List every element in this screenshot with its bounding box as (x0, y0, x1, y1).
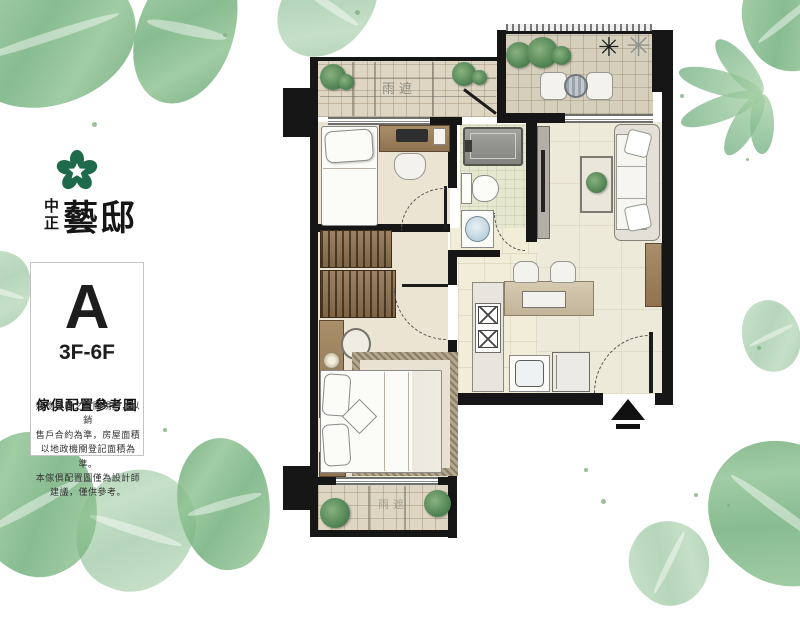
dining-chair (513, 261, 539, 283)
wall (662, 60, 673, 405)
scatter-dot (757, 346, 761, 350)
caption-disclaimer: 建物樓層之空間規劃，以銷 售戶合約為準，房屋面積 以地政機關登記面積為準。 本傢… (32, 399, 144, 500)
scatter-dot (694, 493, 698, 497)
bed-blanket-shade (412, 371, 441, 472)
wall (448, 393, 603, 405)
balcony-plant (320, 498, 350, 528)
wall (655, 393, 673, 405)
single-bed-blanket-fold (323, 168, 376, 169)
terrace-chair (586, 72, 613, 100)
dining-chair (550, 261, 576, 283)
wardrobe-lower (320, 270, 396, 318)
entry-console (645, 243, 662, 307)
leaf-bottom-right-tip (613, 507, 725, 619)
sofa-seat-line (616, 198, 647, 199)
wall (310, 530, 457, 537)
brand-name-large: 藝邸 (63, 190, 137, 241)
window-living-terrace (565, 114, 653, 123)
scatter-dot (163, 428, 167, 432)
toilet-bowl (472, 175, 499, 202)
railing-post (374, 62, 376, 116)
single-bed-pillow (324, 128, 374, 163)
refrigerator (552, 352, 590, 392)
terrace-table (564, 74, 588, 98)
bathtub-inner-line (470, 133, 516, 159)
window-bedroom2-balcony (328, 117, 430, 125)
desk-chair (394, 153, 426, 180)
stove-burner (478, 330, 498, 348)
wall (448, 255, 457, 285)
scatter-dot (601, 499, 606, 504)
laptop (396, 129, 428, 142)
kitchen-sink-basin (515, 360, 544, 387)
wall (310, 57, 500, 61)
toilet-tank (461, 173, 472, 204)
refrigerator-handle (556, 355, 557, 389)
scatter-dot (727, 504, 730, 507)
double-bed-pillow (322, 423, 352, 467)
scatter-dot (680, 94, 684, 98)
wall (283, 88, 312, 137)
bed-blanket-fold (408, 372, 409, 471)
master-door-leaf (402, 284, 448, 287)
terrace-star-plant-light: ✳ (626, 32, 651, 62)
entry-arrow-bar (616, 424, 640, 429)
bathroom-sink-basin (465, 216, 490, 242)
unit-letter: A (31, 277, 143, 339)
unit-floors: 3F-6F (31, 341, 143, 365)
wall (497, 33, 506, 117)
sofa-pillow (624, 203, 653, 232)
railing-post (432, 62, 434, 116)
railing-post (368, 486, 370, 530)
bathtub-faucet (465, 140, 472, 152)
bed-blanket-fold (384, 372, 385, 471)
canopy-label-bottom: 雨遮 (378, 496, 408, 512)
scatter-dot (746, 158, 749, 161)
dresser-lamp (323, 352, 340, 369)
canopy-label-top: 雨遮 (382, 78, 416, 97)
railing-post (352, 62, 354, 116)
desk-pad (433, 128, 446, 145)
brand-name: 中 正 藝邸 (44, 190, 137, 241)
balcony-plant (338, 74, 354, 90)
brand-name-small: 中 正 (44, 199, 60, 231)
plum-blossom-icon (56, 150, 98, 192)
coffee-table-plant (586, 172, 607, 193)
scatter-dot (584, 468, 588, 472)
leaf-right-small (731, 292, 800, 380)
wall (430, 117, 462, 125)
leaf-top-left-banana (119, 0, 253, 116)
terrace-chair (540, 72, 567, 100)
wall (526, 122, 537, 242)
entry-arrow-icon (611, 399, 645, 420)
leaf-top-left-monstera (0, 0, 151, 124)
wardrobe-upper (320, 230, 392, 268)
tv-screen (541, 150, 545, 212)
wall (283, 466, 312, 510)
dining-bar-sink (522, 291, 566, 308)
scatter-dot (223, 33, 227, 37)
terrace-star-plant-dark: ✳ (598, 34, 620, 60)
window-master-balcony (336, 477, 438, 485)
wall (310, 477, 336, 485)
stove-burner (478, 306, 498, 324)
balcony-plant (424, 490, 451, 517)
balcony-plant (472, 70, 487, 85)
scatter-dot (355, 10, 360, 15)
terrace-plant (552, 46, 571, 65)
sofa-seat-line (616, 166, 647, 167)
scatter-dot (92, 122, 97, 127)
